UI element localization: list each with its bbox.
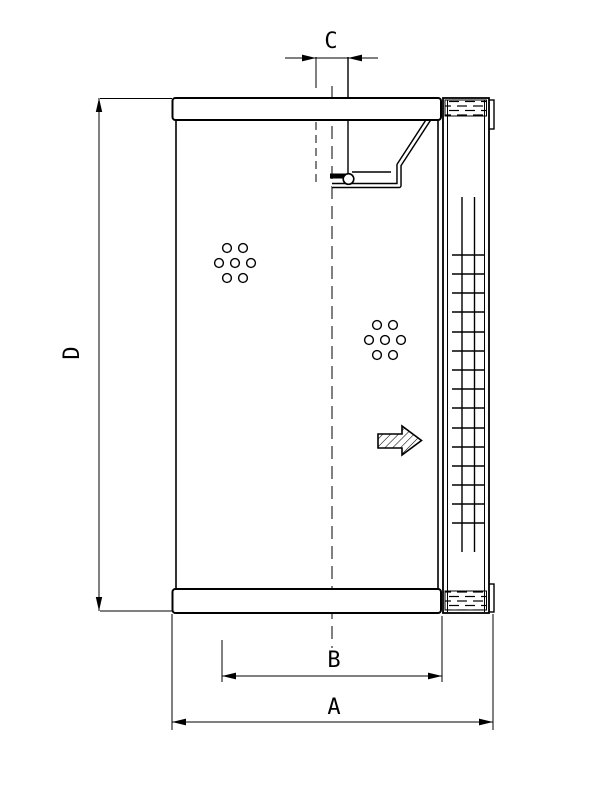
filter-element-drawing: C D B A xyxy=(0,0,612,792)
drawing-page: C D B A xyxy=(0,0,612,792)
dimension-label-a: A xyxy=(327,695,340,720)
top-end-cap xyxy=(173,98,442,120)
dimension-label-d: D xyxy=(60,346,85,359)
seal-gasket-top xyxy=(445,100,487,116)
seal-band xyxy=(443,98,494,613)
band-outer-shell xyxy=(443,98,489,613)
dimension-label-b: B xyxy=(327,648,340,673)
dimension-label-c: C xyxy=(324,29,337,54)
valve-ball xyxy=(343,174,354,185)
bottom-end-cap xyxy=(173,589,442,613)
seal-gasket-bottom xyxy=(445,591,487,610)
